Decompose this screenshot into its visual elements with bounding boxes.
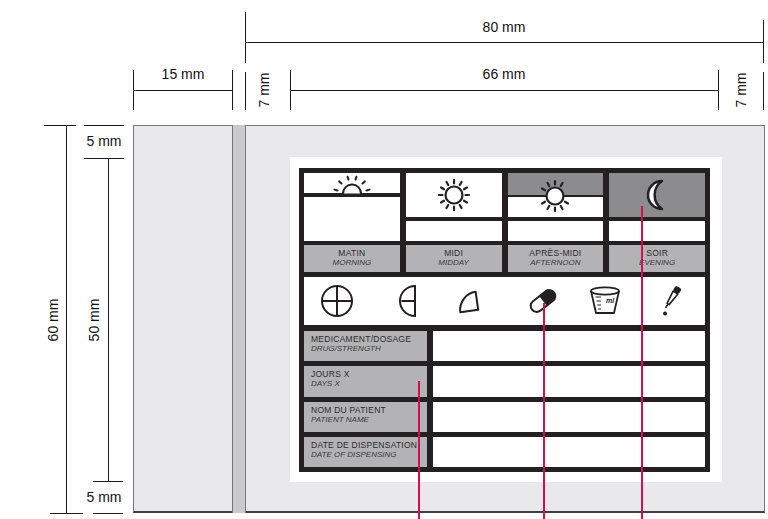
time-column-midday: MIDI MIDDAY bbox=[406, 173, 502, 272]
evening-icon-cell bbox=[609, 173, 705, 217]
callout-line-capsule-icon bbox=[543, 303, 545, 519]
tablet-whole-icon bbox=[320, 284, 354, 318]
sunrise-icon bbox=[332, 175, 372, 194]
time-column-afternoon: APRÈS-MIDI AFTERNOON bbox=[508, 173, 604, 272]
evening-dose-writein bbox=[609, 221, 705, 241]
sun-icon bbox=[437, 178, 471, 212]
measuring-cup-icon: ml bbox=[587, 285, 623, 317]
dispensing-date-label: DATE DE DISPENSATION DATE OF DISPENSING bbox=[304, 437, 427, 467]
midday-label: MIDI MIDDAY bbox=[406, 245, 502, 272]
callout-line-days-field bbox=[418, 381, 420, 519]
morning-icon-cell bbox=[304, 173, 400, 193]
afternoon-dose-writein bbox=[508, 221, 604, 241]
field-row-days: JOURS X DAYS X bbox=[304, 366, 705, 396]
dim-print-height: 50 mm bbox=[86, 290, 102, 350]
fields-section: MEDICAMENT/DOSAGE DRUG/STRENGTH JOURS X … bbox=[304, 331, 705, 467]
field-row-drug: MEDICAMENT/DOSAGE DRUG/STRENGTH bbox=[304, 331, 705, 361]
evening-label: SOIR EVENING bbox=[609, 245, 705, 272]
callout-line-moon-icon bbox=[641, 206, 643, 519]
time-column-evening: SOIR EVENING bbox=[609, 173, 705, 272]
cup-ml-text: ml bbox=[606, 297, 615, 304]
patient-name-writein bbox=[433, 402, 705, 432]
dim-total-width: 80 mm bbox=[474, 19, 534, 35]
morning-dose-writein bbox=[304, 197, 400, 241]
dim-left-margin: 7 mm bbox=[256, 64, 272, 116]
days-writein bbox=[433, 366, 705, 396]
dose-form-icon-row: ml bbox=[304, 277, 705, 325]
moon-icon bbox=[639, 177, 675, 213]
patient-name-label: NOM DU PATIENT PATIENT NAME bbox=[304, 402, 427, 432]
dropper-icon bbox=[658, 285, 686, 317]
sunset-icon bbox=[538, 179, 572, 213]
days-label: JOURS X DAYS X bbox=[304, 366, 427, 396]
midday-icon-cell bbox=[406, 173, 502, 217]
label-spec-diagram: 80 mm 15 mm 7 mm 66 mm 7 mm 60 mm 50 mm … bbox=[0, 0, 768, 519]
dim-print-width: 66 mm bbox=[474, 66, 534, 82]
field-row-dispensing-date: DATE DE DISPENSATION DATE OF DISPENSING bbox=[304, 437, 705, 467]
dim-right-margin: 7 mm bbox=[733, 64, 749, 116]
dim-bottom-margin: 5 mm bbox=[78, 489, 130, 505]
drug-strength-writein bbox=[433, 331, 705, 361]
pictogram-grid: MATIN MORNING bbox=[299, 168, 710, 472]
midday-dose-writein bbox=[406, 221, 502, 241]
time-column-morning: MATIN MORNING bbox=[304, 173, 400, 272]
dim-top-margin: 5 mm bbox=[78, 133, 130, 149]
dispensing-date-writein bbox=[433, 437, 705, 467]
tablet-quarter-icon bbox=[454, 288, 480, 314]
dim-liner-tab-width: 15 mm bbox=[153, 66, 213, 82]
time-of-day-section: MATIN MORNING bbox=[304, 173, 705, 272]
dim-total-height: 60 mm bbox=[45, 290, 61, 350]
afternoon-label: APRÈS-MIDI AFTERNOON bbox=[508, 245, 604, 272]
field-row-patient: NOM DU PATIENT PATIENT NAME bbox=[304, 402, 705, 432]
drug-strength-label: MEDICAMENT/DOSAGE DRUG/STRENGTH bbox=[304, 331, 427, 361]
liner-tab-divider-strip bbox=[232, 125, 246, 513]
tablet-half-icon bbox=[398, 284, 418, 318]
morning-label: MATIN MORNING bbox=[304, 245, 400, 272]
afternoon-icon-cell bbox=[508, 173, 604, 217]
